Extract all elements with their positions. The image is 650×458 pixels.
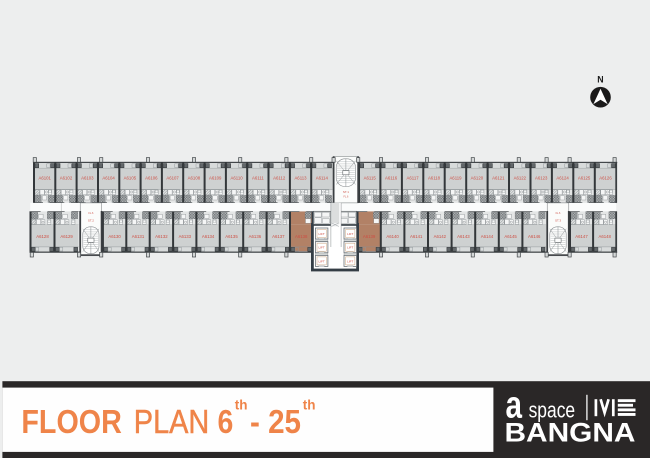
svg-text:A6115: A6115: [364, 176, 377, 181]
svg-text:A6142: A6142: [434, 234, 447, 239]
svg-text:ST.1: ST.1: [343, 190, 349, 194]
svg-text:A6126: A6126: [599, 176, 612, 181]
svg-text:A6139: A6139: [363, 234, 376, 239]
svg-text:A6118: A6118: [428, 176, 441, 181]
svg-text:A6140: A6140: [386, 234, 399, 239]
svg-text:A6145: A6145: [504, 234, 517, 239]
svg-text:A6137: A6137: [272, 234, 285, 239]
svg-text:A6114: A6114: [316, 176, 329, 181]
svg-text:A6141: A6141: [410, 234, 423, 239]
svg-text:A6104: A6104: [102, 176, 115, 181]
svg-text:A6111: A6111: [252, 176, 264, 181]
svg-text:ST.3: ST.3: [555, 218, 561, 222]
svg-text:A6125: A6125: [578, 176, 591, 181]
svg-text:A6143: A6143: [457, 234, 470, 239]
svg-text:A6110: A6110: [231, 176, 244, 181]
svg-text:6: 6: [218, 404, 234, 441]
svg-text:A6103: A6103: [81, 176, 94, 181]
svg-text:LIFT: LIFT: [347, 246, 353, 250]
svg-text:A6144: A6144: [481, 234, 494, 239]
svg-text:FLOOR: FLOOR: [21, 404, 121, 441]
svg-text:LIFT: LIFT: [347, 232, 353, 236]
svg-text:A6136: A6136: [249, 234, 262, 239]
svg-text:A6133: A6133: [179, 234, 192, 239]
svg-text:A6148: A6148: [598, 234, 611, 239]
svg-text:A6135: A6135: [225, 234, 238, 239]
svg-text:A6113: A6113: [294, 176, 307, 181]
svg-text:A6119: A6119: [449, 176, 462, 181]
svg-text:ST.2: ST.2: [88, 218, 94, 222]
svg-text:th: th: [235, 398, 248, 413]
svg-text:A6129: A6129: [60, 234, 73, 239]
svg-text:A6122: A6122: [514, 176, 527, 181]
svg-text:A6134: A6134: [202, 234, 215, 239]
svg-text:LIFT: LIFT: [319, 232, 325, 236]
svg-text:A6101: A6101: [38, 176, 51, 181]
svg-text:A6116: A6116: [385, 176, 398, 181]
svg-text:- 25: - 25: [250, 404, 301, 441]
svg-text:A6109: A6109: [209, 176, 222, 181]
svg-text:LIFT: LIFT: [319, 246, 325, 250]
svg-text:FL.6: FL.6: [89, 212, 94, 215]
svg-text:A6121: A6121: [492, 176, 505, 181]
svg-text:A6105: A6105: [124, 176, 137, 181]
svg-text:A6138: A6138: [295, 234, 308, 239]
svg-text:FL.6: FL.6: [556, 212, 561, 215]
svg-text:A6107: A6107: [166, 176, 179, 181]
svg-text:A6132: A6132: [155, 234, 168, 239]
svg-text:A6120: A6120: [471, 176, 484, 181]
svg-text:FL.6: FL.6: [344, 195, 349, 198]
svg-text:A6102: A6102: [60, 176, 73, 181]
svg-text:A6117: A6117: [407, 176, 420, 181]
svg-text:A6123: A6123: [535, 176, 548, 181]
svg-text:A6106: A6106: [145, 176, 158, 181]
svg-text:A6128: A6128: [36, 234, 49, 239]
svg-text:A6124: A6124: [556, 176, 569, 181]
svg-text:A6112: A6112: [273, 176, 286, 181]
svg-text:PLAN: PLAN: [134, 404, 210, 441]
svg-text:A6131: A6131: [132, 234, 145, 239]
svg-text:N: N: [597, 75, 603, 85]
svg-text:BANGNA: BANGNA: [505, 418, 636, 448]
svg-text:LIFT: LIFT: [319, 259, 325, 263]
svg-text:LIFT: LIFT: [347, 259, 353, 263]
svg-text:th: th: [303, 398, 316, 413]
svg-text:A6146: A6146: [528, 234, 541, 239]
svg-text:A6130: A6130: [108, 234, 121, 239]
svg-text:A6108: A6108: [188, 176, 201, 181]
svg-text:A6147: A6147: [575, 234, 588, 239]
